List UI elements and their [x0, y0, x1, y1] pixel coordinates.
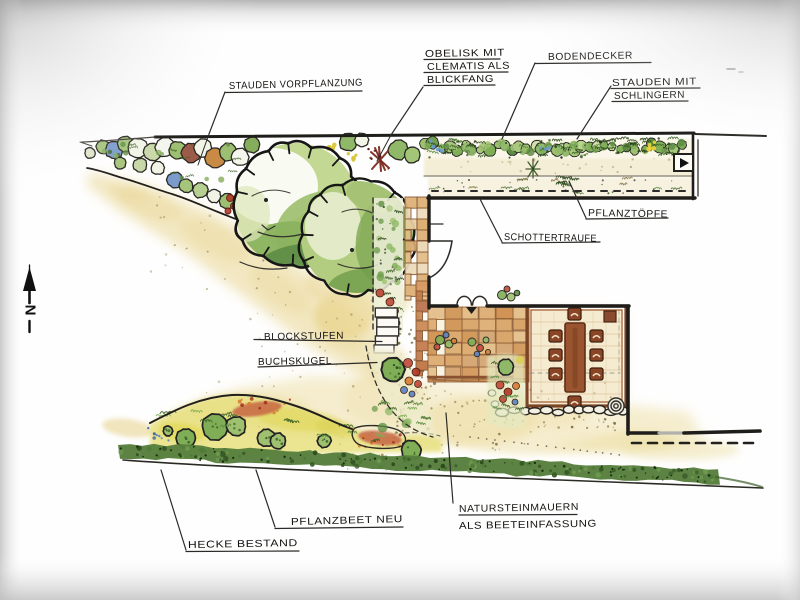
svg-text:NATURSTEINMAUERN: NATURSTEINMAUERN: [459, 502, 579, 515]
svg-text:CLEMATIS ALS: CLEMATIS ALS: [427, 61, 510, 73]
svg-text:OBELISK MIT: OBELISK MIT: [425, 48, 505, 60]
svg-text:HECKE BESTAND: HECKE BESTAND: [188, 538, 298, 551]
svg-text:BLICKFANG: BLICKFANG: [427, 74, 494, 86]
svg-text:N: N: [22, 305, 39, 316]
